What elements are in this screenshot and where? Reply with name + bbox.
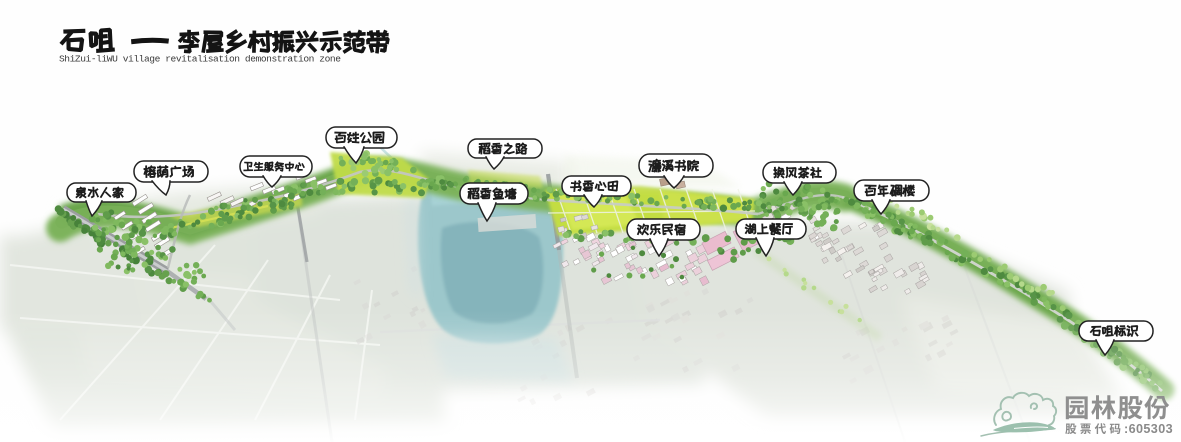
svg-text::605303: :605303 [1124,422,1173,436]
svg-text:ShiZui-liWU village revitalisa: ShiZui-liWU village revitalisation demon… [59,53,341,64]
